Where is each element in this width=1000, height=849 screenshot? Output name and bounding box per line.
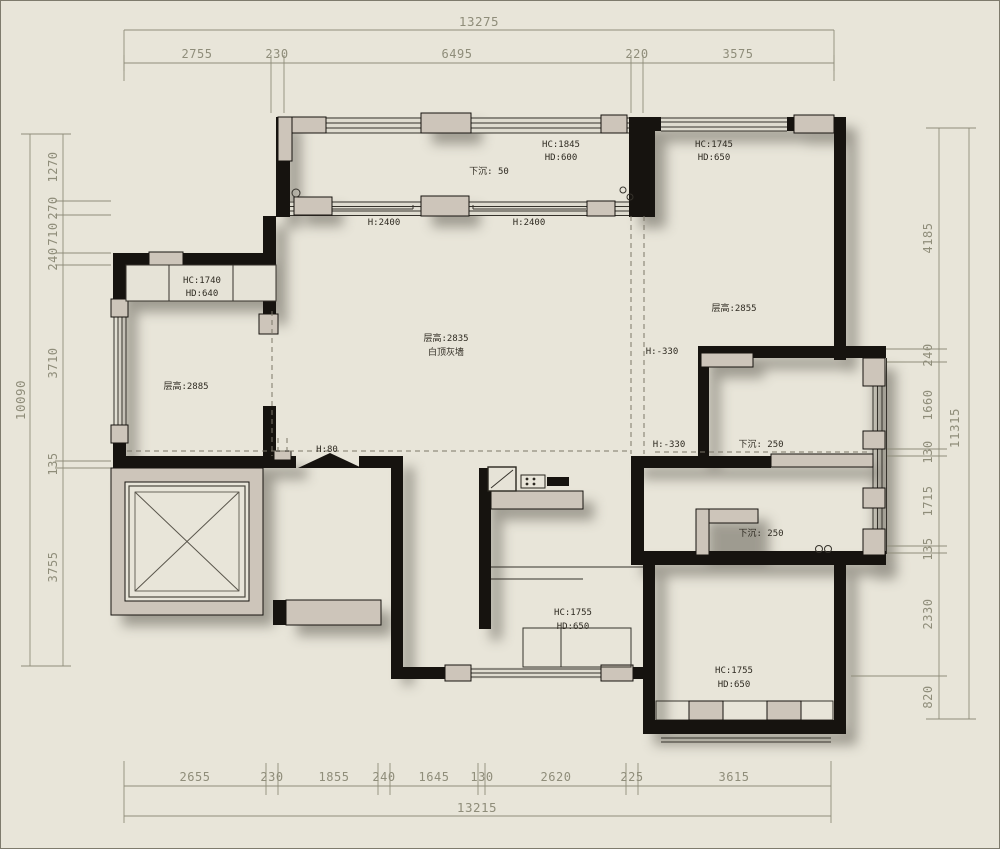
dim-left-seg3: 240 — [46, 247, 60, 270]
dim-left-seg6: 3755 — [46, 552, 60, 583]
dim-right-seg2: 1660 — [921, 390, 935, 421]
label-living-height: 层高:2835 — [423, 332, 468, 344]
dim-left-seg0: 1270 — [46, 152, 60, 183]
dim-left-seg2: 710 — [46, 222, 60, 245]
label-bedroom-tr-height: 层高:2855 — [711, 302, 756, 314]
elevator-shaft — [111, 468, 263, 615]
dim-bottom-seg1: 230 — [260, 770, 283, 784]
dim-bottom-seg2: 1855 — [319, 770, 350, 784]
dim-right-seg7: 820 — [921, 685, 935, 708]
floor-plan-canvas: 13275 2755 230 6495 220 3575 13215 2655 … — [0, 0, 1000, 849]
dim-left-seg4: 3710 — [46, 348, 60, 379]
label-entry-step: H:80 — [316, 445, 338, 455]
dim-bottom-seg6: 2620 — [541, 770, 572, 784]
window-layer — [114, 117, 887, 742]
dim-bottom-seg5: 130 — [470, 770, 493, 784]
page: { "colors": { "background": "#e8e5d9", "… — [0, 0, 1000, 849]
dim-left-seg1: 270 — [46, 196, 60, 219]
label-living-finish: 白顶灰墙 — [428, 346, 464, 358]
label-balcony-r1-sunken: 下沉: 250 — [738, 439, 783, 450]
dashed-guides — [127, 216, 869, 456]
label-bedroom-br-hc: HC:1755 — [715, 666, 753, 676]
label-bedroom-left-height: 层高:2885 — [163, 380, 208, 392]
dim-bottom-overall: 13215 — [457, 800, 497, 815]
label-bath-hc: HC:1755 — [554, 608, 592, 618]
dim-bottom-seg7: 225 — [620, 770, 643, 784]
kitchen-fixtures — [488, 467, 545, 491]
dim-top: 13275 2755 230 6495 220 3575 — [124, 14, 834, 113]
stove-icon — [521, 475, 545, 488]
dim-top-seg0: 2755 — [182, 47, 213, 61]
dim-top-seg2: 6495 — [442, 47, 473, 61]
shadow-layer — [122, 124, 897, 745]
dim-bottom-seg8: 3615 — [719, 770, 750, 784]
dim-top-seg3: 220 — [625, 47, 648, 61]
label-balcony-top-hd: HD:600 — [545, 153, 578, 163]
label-bedroom-tr-hd: HD:650 — [698, 153, 731, 163]
dim-right-seg4: 1715 — [921, 486, 935, 517]
label-bedroom-tr-hc: HC:1745 — [695, 140, 733, 150]
entry-door-threshold — [298, 453, 362, 468]
label-balcony-top-sunken: 下沉: 50 — [469, 166, 509, 177]
label-bath-hd: HD:650 — [557, 622, 590, 632]
dim-right-seg6: 2330 — [921, 599, 935, 630]
label-balcony-r1-drop: H:-330 — [653, 440, 686, 450]
dim-top-seg4: 3575 — [723, 47, 754, 61]
dim-right-seg3: 130 — [921, 440, 935, 463]
dim-bottom-seg4: 1645 — [419, 770, 450, 784]
dim-top-seg1: 230 — [265, 47, 288, 61]
dim-right-seg0: 4185 — [921, 223, 935, 254]
label-balcony-r2-sunken: 下沉: 250 — [738, 528, 783, 539]
dim-bottom-seg0: 2655 — [180, 770, 211, 784]
floor-plan-svg: 13275 2755 230 6495 220 3575 13215 2655 … — [1, 1, 1000, 849]
label-window-right-h: H:2400 — [513, 218, 546, 228]
dim-bottom-seg3: 240 — [372, 770, 395, 784]
label-window-left-h: H:2400 — [368, 218, 401, 228]
label-living-drop: H:-330 — [646, 347, 679, 357]
dim-right-overall: 11315 — [947, 408, 962, 448]
dim-bottom: 13215 2655 230 1855 240 1645 130 2620 22… — [124, 761, 831, 823]
kitchen-counter — [491, 491, 583, 509]
dim-right-seg5: 135 — [921, 537, 935, 560]
dim-left-overall: 10090 — [13, 380, 28, 420]
dim-right: 11315 4185 240 1660 130 1715 135 2330 82… — [851, 128, 976, 719]
dim-left: 10090 1270 270 710 240 3710 135 3755 — [13, 134, 111, 666]
bedroom-br-window — [656, 701, 833, 720]
bedroom-tr-window — [661, 117, 787, 131]
dim-right-seg1: 240 — [921, 343, 935, 366]
label-bedroom-left-hd: HD:640 — [186, 289, 219, 299]
dim-left-seg5: 135 — [46, 452, 60, 475]
dim-top-overall: 13275 — [459, 14, 499, 29]
label-balcony-top-hc: HC:1845 — [542, 140, 580, 150]
label-bedroom-br-hd: HD:650 — [718, 680, 751, 690]
label-bedroom-left-hc: HC:1740 — [183, 276, 221, 286]
